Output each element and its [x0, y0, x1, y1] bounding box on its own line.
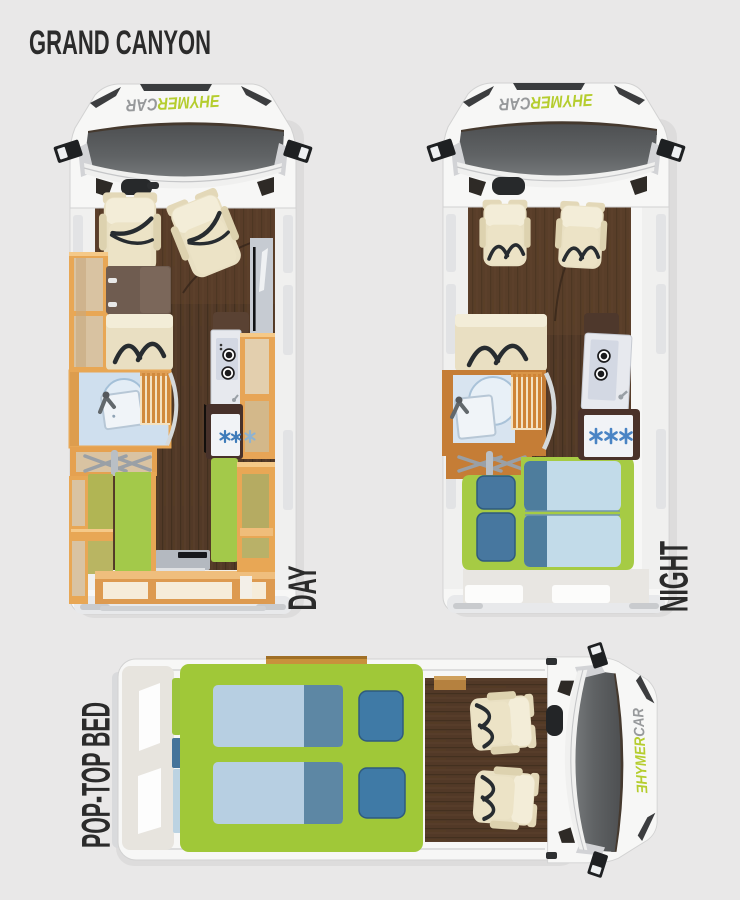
svg-text:GRAND CANYON: GRAND CANYON	[29, 24, 211, 62]
svg-text:POP-TOP BED: POP-TOP BED	[75, 702, 119, 848]
svg-text:DAY: DAY	[281, 565, 325, 610]
svg-text:NIGHT: NIGHT	[653, 541, 697, 612]
